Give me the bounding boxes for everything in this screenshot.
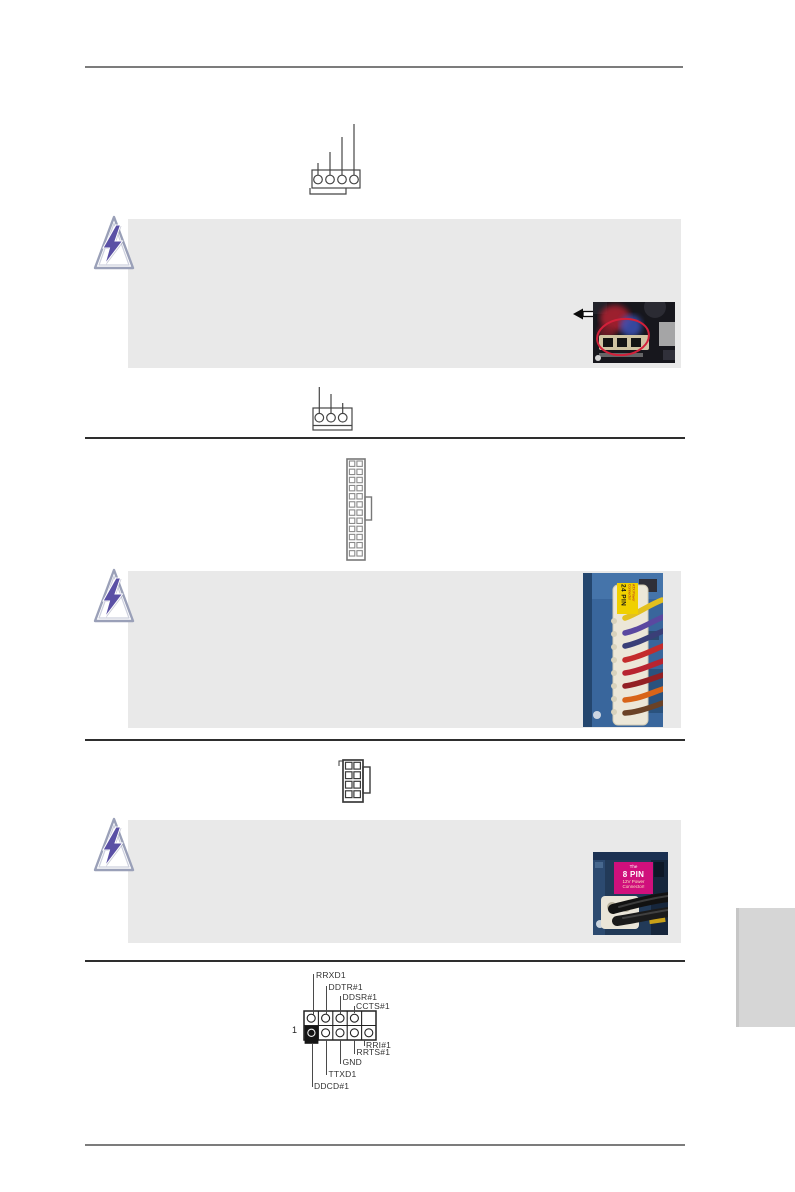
warning-lightning-icon [92,816,136,874]
diagram-3pin-fan-connector [305,380,365,436]
manual-page: 24 PIN ATX Power Connector [0,0,795,1192]
leader-line [313,974,314,1015]
pin-label-ddtr1: DDTR#1 [329,983,363,992]
pin-label-rrts1: RRTS#1 [357,1048,391,1057]
diagram-4pin-fan-connector [305,120,365,200]
diagram-24pin-atx-connector [340,455,380,565]
pin-label-rrxd1: RRXD1 [316,971,346,980]
pin-label-gnd: GND [343,1058,363,1067]
page-edge-tab [736,908,795,1027]
leader-line [312,1044,313,1088]
diagram-8pin-12v-connector [335,752,379,810]
leader-line [354,1040,355,1054]
leader-line [364,1040,365,1046]
leader-line [326,1040,327,1075]
leader-line [340,996,341,1015]
photo-label-24pin: 24 PIN ATX Power Connector [617,583,638,614]
section-divider [85,739,685,741]
label-24pin-subtext: ATX Power Connector [628,584,636,613]
label-8pin-line2: 8 PIN [614,870,653,879]
pin-label-ddcd1: DDCD#1 [314,1082,349,1091]
diagram-serial-port-header: RRXD1 DDTR#1 DDSR#1 CCTS#1 RRI#1 RRTS#1 … [280,960,410,1100]
photo-label-8pin: The 8 PIN 12V Power Connector! [614,862,653,894]
warning-lightning-icon [92,214,136,272]
leader-line [340,1040,341,1064]
leader-line [326,986,327,1015]
page-bottom-rule [85,1144,685,1146]
section-divider [85,437,685,439]
label-24pin-text: 24 PIN [620,584,627,613]
photo-fan-header-closeup [593,302,675,363]
leader-line [354,1006,355,1013]
warning-lightning-icon [92,567,136,625]
label-8pin-line4: Connector! [614,884,653,890]
pin-label-ttxd1: TTXD1 [329,1070,357,1079]
pin1-marker: 1 [292,1025,297,1035]
pin-label-ccts1: CCTS#1 [356,1002,390,1011]
page-top-rule [85,66,683,68]
